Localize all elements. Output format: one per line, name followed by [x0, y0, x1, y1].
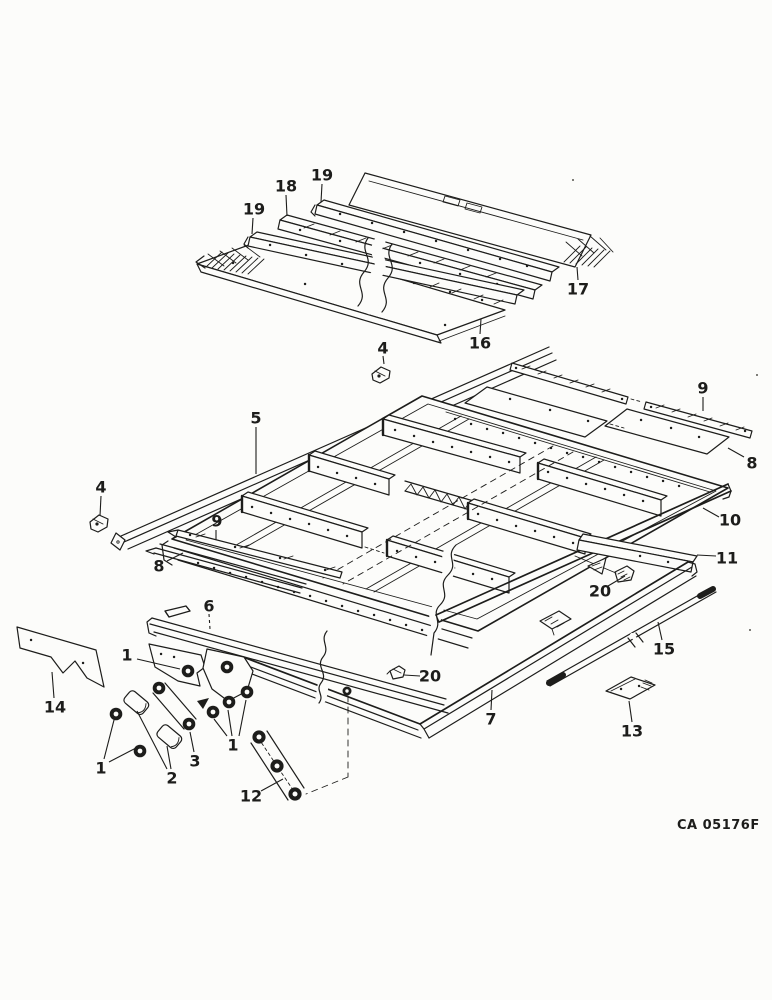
- callout-label: 5: [250, 409, 261, 428]
- figure-code: CA 05176F: [677, 818, 760, 833]
- callout-label: 4: [377, 339, 388, 358]
- callout-17: 17: [567, 267, 589, 299]
- callout-3: 3: [189, 732, 200, 771]
- clip-20-left: [387, 666, 405, 679]
- callout-label: 1: [227, 736, 238, 755]
- callout-4: 4: [377, 339, 388, 365]
- callout-6: 6: [203, 597, 214, 630]
- drive-rod-15: [547, 587, 716, 686]
- callout-label: 8: [153, 557, 164, 576]
- callout-1: 1: [95, 720, 136, 778]
- callout-label: 17: [567, 280, 589, 299]
- callout-label: 2: [166, 769, 177, 788]
- plate-14: [17, 627, 104, 687]
- callout-label: 11: [716, 549, 738, 568]
- callout-19: 19: [243, 200, 265, 235]
- support-plate: [149, 644, 205, 686]
- callout-label: 19: [243, 200, 265, 219]
- callout-label: 16: [469, 334, 491, 353]
- callout-20: 20: [589, 576, 625, 601]
- callout-label: 9: [211, 512, 222, 531]
- callout-label: 19: [311, 166, 333, 185]
- callout-19: 19: [311, 166, 333, 203]
- hanger-mechanism: [17, 606, 448, 801]
- callout-label: 9: [697, 379, 708, 398]
- callout-13: 13: [621, 701, 643, 741]
- callout-label: 15: [653, 640, 675, 659]
- callout-7: 7: [485, 690, 496, 729]
- callout-16: 16: [469, 319, 491, 353]
- callout-label: 12: [240, 787, 262, 806]
- callout-20: 20: [404, 667, 441, 686]
- callout-label: 1: [95, 759, 106, 778]
- callout-label: 20: [419, 667, 441, 686]
- callout-8: 8: [728, 448, 758, 473]
- link-12: [251, 696, 348, 800]
- plate-13: [606, 677, 655, 699]
- parts-diagram: 1918191716454989810112020151376141123112…: [0, 0, 772, 1000]
- callout-label: 3: [189, 752, 200, 771]
- callout-label: 14: [44, 698, 66, 717]
- callout-label: 8: [746, 454, 757, 473]
- pan-assembly-exploded: [196, 173, 613, 343]
- callout-4: 4: [95, 478, 106, 517]
- callout-15: 15: [653, 622, 675, 659]
- callout-label: 13: [621, 722, 643, 741]
- callout-label: 10: [719, 511, 741, 530]
- clip-4-left: [90, 515, 108, 532]
- callout-5: 5: [250, 409, 261, 475]
- clip-4-top: [372, 367, 390, 383]
- callout-label: 18: [275, 177, 297, 196]
- hanger-bracket: [540, 611, 571, 635]
- callout-10: 10: [703, 508, 741, 530]
- callout-14: 14: [44, 672, 66, 717]
- callout-9: 9: [697, 379, 708, 412]
- manual-page: 1918191716454989810112020151376141123112…: [0, 0, 772, 1000]
- callout-label: 7: [485, 710, 496, 729]
- spacer-2: [155, 723, 183, 750]
- callout-18: 18: [275, 177, 297, 217]
- callout-label: 6: [203, 597, 214, 616]
- callout-11: 11: [697, 549, 738, 568]
- callout-12: 12: [240, 779, 283, 806]
- pointer-icon: [197, 698, 209, 709]
- callout-label: 20: [589, 582, 611, 601]
- spacer-2: [122, 689, 150, 716]
- callout-label: 1: [121, 646, 132, 665]
- callout-label: 4: [95, 478, 106, 497]
